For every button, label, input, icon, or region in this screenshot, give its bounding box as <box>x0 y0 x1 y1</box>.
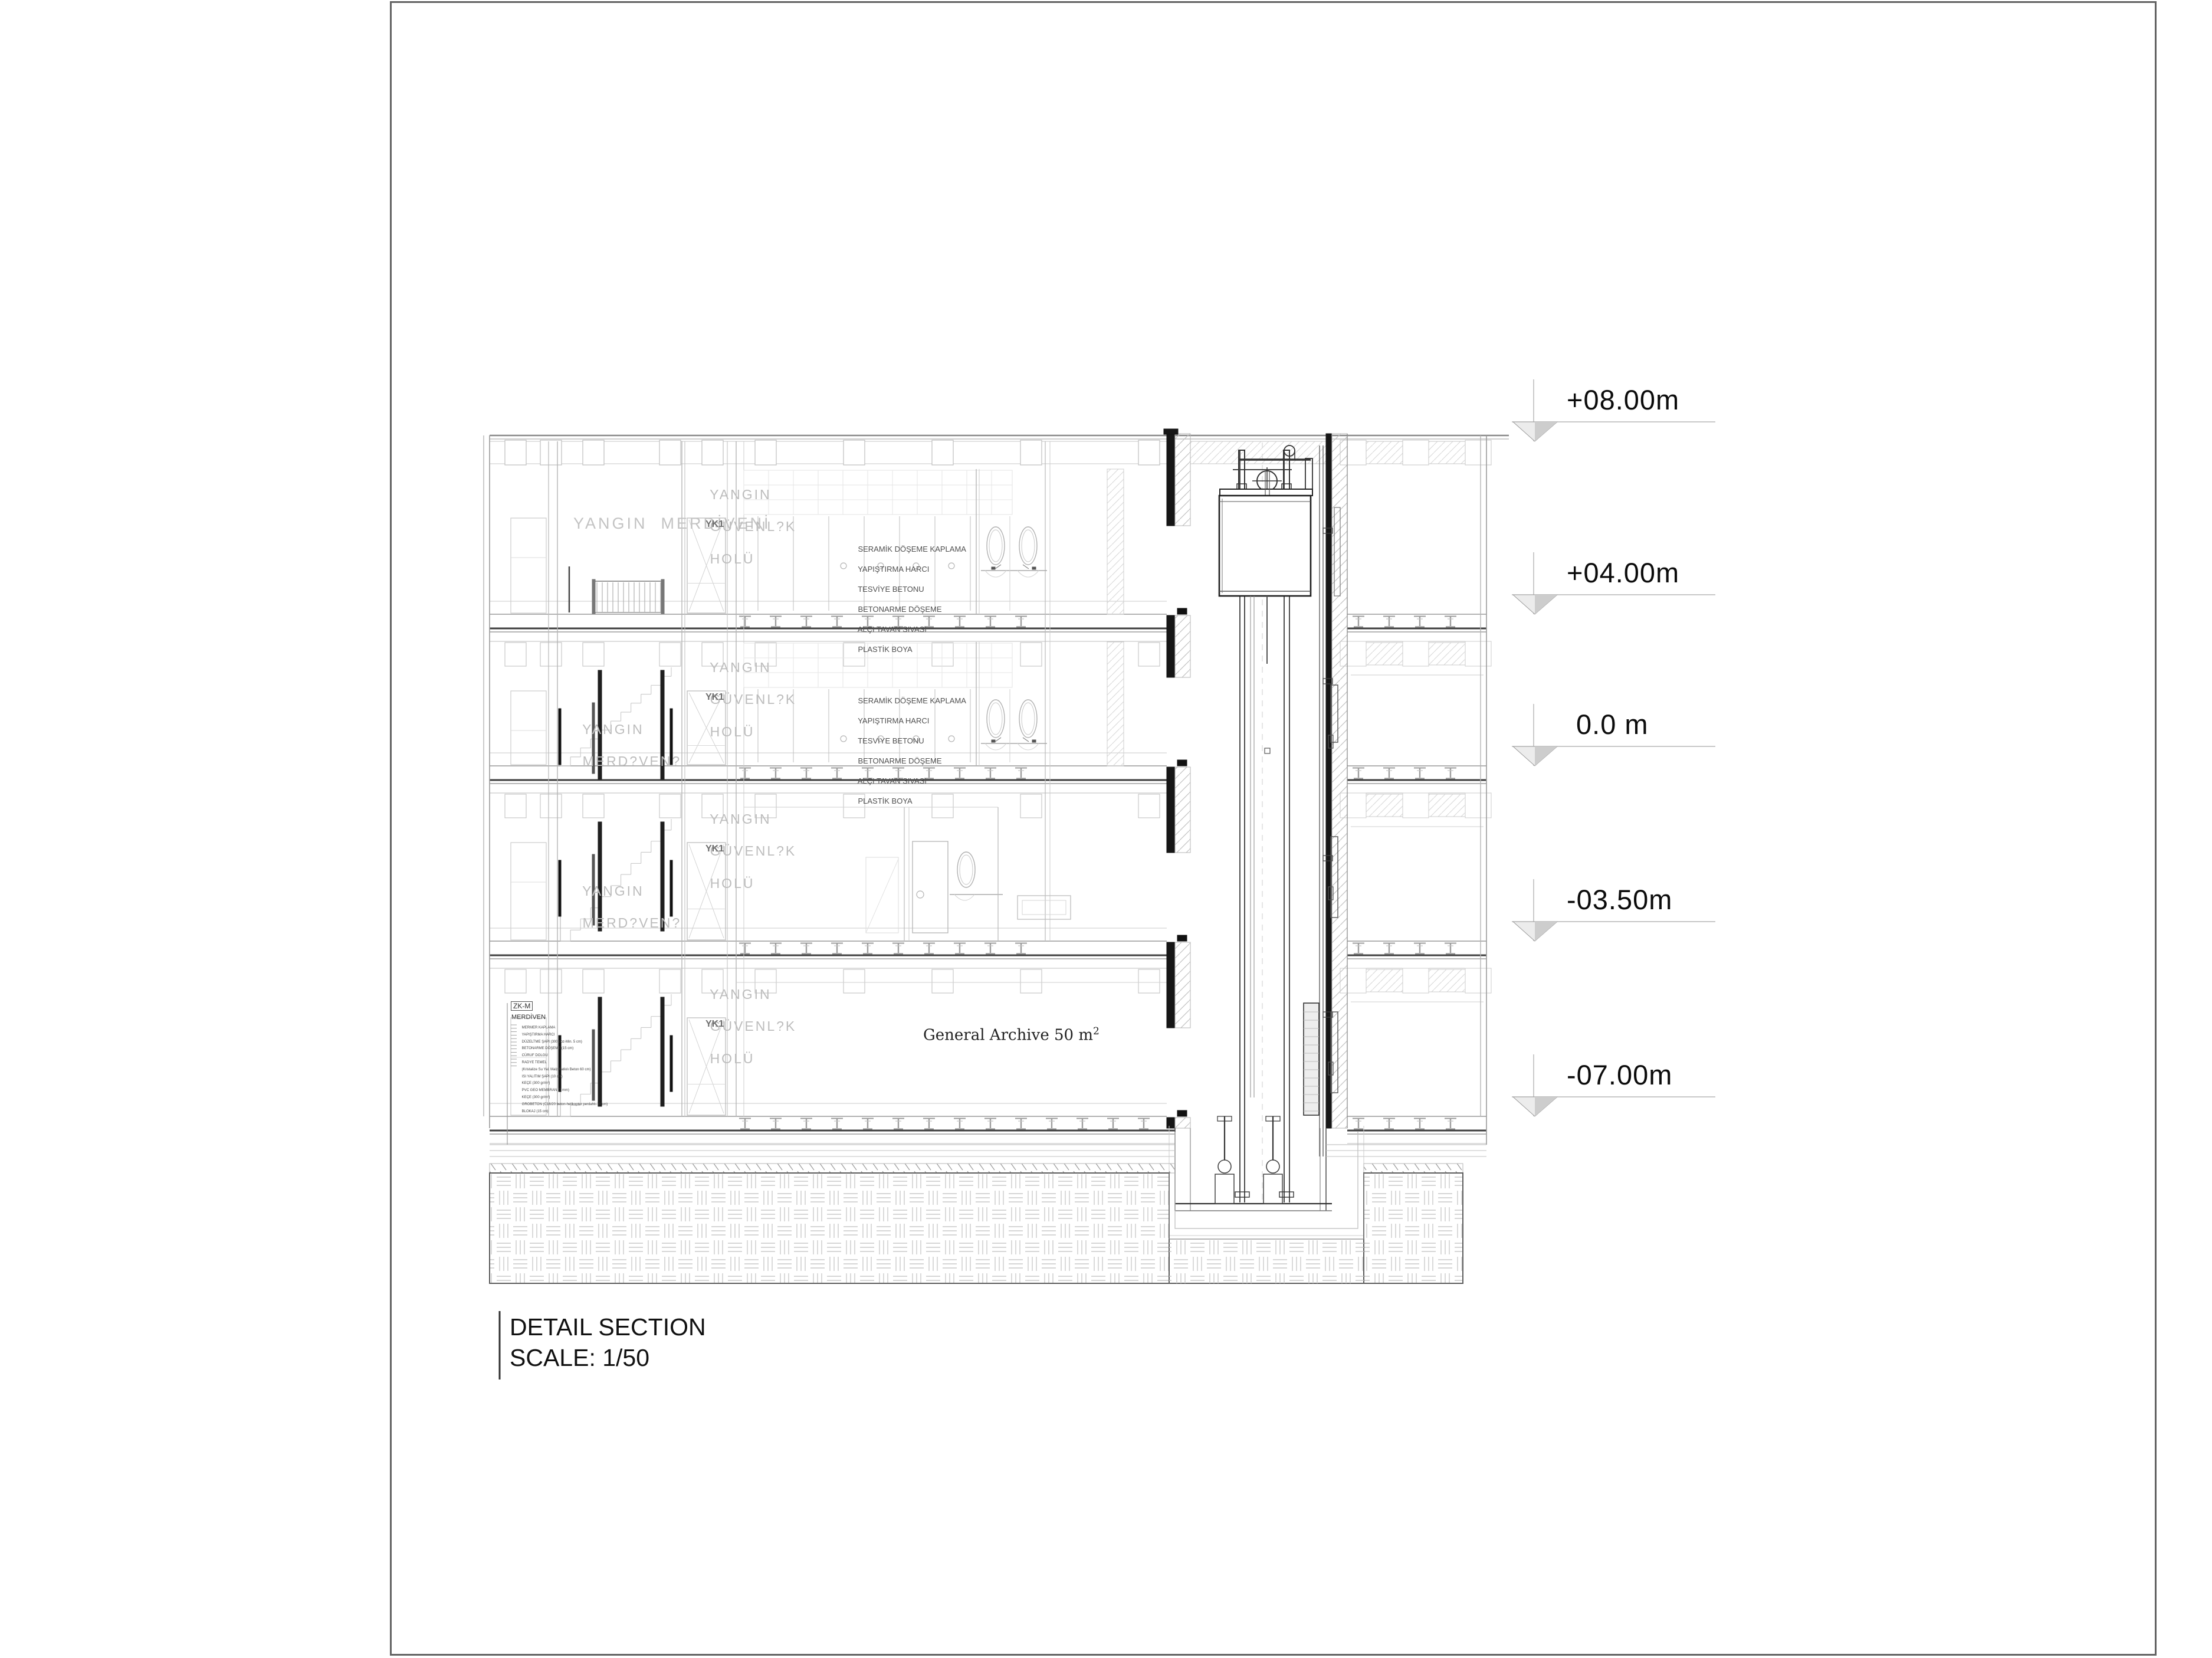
fire-lobby-label-s4: YANGIN GÜVENL?K HOLÜ <box>688 971 796 1083</box>
fire-lobby-label-s2: YANGIN GÜVENL?K HOLÜ <box>688 644 796 756</box>
archive-sup: 2 <box>1093 1025 1100 1037</box>
drawing-scale: SCALE: 1/50 <box>510 1344 649 1372</box>
door-tag-s1: YK1 <box>705 519 724 530</box>
fire-lobby-label-s3: YANGIN GÜVENL?K HOLÜ <box>688 795 796 907</box>
elevation-label-plus4: +04.00m <box>1567 556 1679 589</box>
drawing-title: DETAIL SECTION <box>510 1313 706 1341</box>
door-tag-s3: YK1 <box>705 844 724 855</box>
elevation-label-plus8: +08.00m <box>1567 384 1679 416</box>
floor-spec-s1: SERAMİK DÖŞEME KAPLAMA YAPIŞTIRMA HARCI … <box>849 534 966 664</box>
section-drawing-linework <box>0 0 2212 1658</box>
elevation-label-minus35: -03.50m <box>1567 883 1672 916</box>
archive-room-label: General Archive 50 m2 <box>923 1025 1100 1044</box>
elevation-label-minus7: -07.00m <box>1567 1059 1672 1091</box>
door-tag-s4: YK1 <box>705 1019 724 1030</box>
floor-spec-s2: SERAMİK DÖŞEME KAPLAMA YAPIŞTIRMA HARCI … <box>849 686 966 816</box>
fire-stair-label-s3: YANGIN MERD?VEN? <box>560 867 681 948</box>
drawing-sheet: YANGIN MERDİVENİ YANGIN MERD?VEN? YANGIN… <box>0 0 2212 1658</box>
foundation-spec-code: ZK-M <box>511 1001 533 1011</box>
door-tag-s2: YK1 <box>705 692 724 703</box>
fire-lobby-label-s1: YANGIN GÜVENL?K HOLÜ <box>688 471 796 583</box>
foundation-spec-items: MERMER KAPLAMA YAPIŞTIRMA HARCI DÜZELTME… <box>518 1023 608 1117</box>
elevation-label-zero: 0.0 m <box>1576 708 1649 740</box>
fire-stair-label-s2: YANGIN MERD?VEN? <box>560 706 681 786</box>
foundation-spec-title: MERDİVEN <box>511 1014 546 1021</box>
